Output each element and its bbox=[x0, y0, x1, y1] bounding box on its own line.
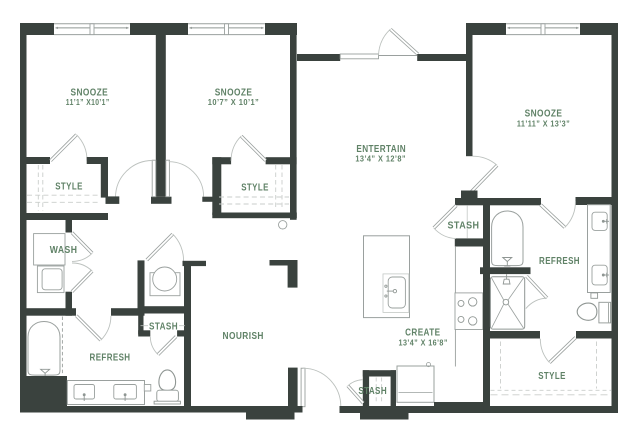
svg-text:NOURISH: NOURISH bbox=[223, 331, 264, 342]
svg-text:STASH: STASH bbox=[448, 220, 480, 231]
svg-text:11’11” X 13’3”: 11’11” X 13’3” bbox=[517, 119, 570, 129]
svg-text:REFRESH: REFRESH bbox=[539, 256, 580, 267]
svg-text:10’7” X 10’1”: 10’7” X 10’1” bbox=[208, 97, 260, 107]
svg-text:WASH: WASH bbox=[50, 245, 78, 256]
svg-text:STASH: STASH bbox=[358, 386, 387, 397]
svg-text:13’4” X 16’8”: 13’4” X 16’8” bbox=[399, 338, 448, 348]
svg-text:11’1” X10’1”: 11’1” X10’1” bbox=[66, 97, 110, 107]
svg-text:REFRESH: REFRESH bbox=[90, 352, 131, 363]
svg-text:STYLE: STYLE bbox=[241, 183, 269, 194]
svg-text:STASH: STASH bbox=[149, 322, 178, 333]
svg-text:STYLE: STYLE bbox=[55, 181, 83, 192]
svg-text:13’4” X 12’8”: 13’4” X 12’8” bbox=[355, 154, 406, 164]
svg-text:STYLE: STYLE bbox=[538, 371, 566, 382]
